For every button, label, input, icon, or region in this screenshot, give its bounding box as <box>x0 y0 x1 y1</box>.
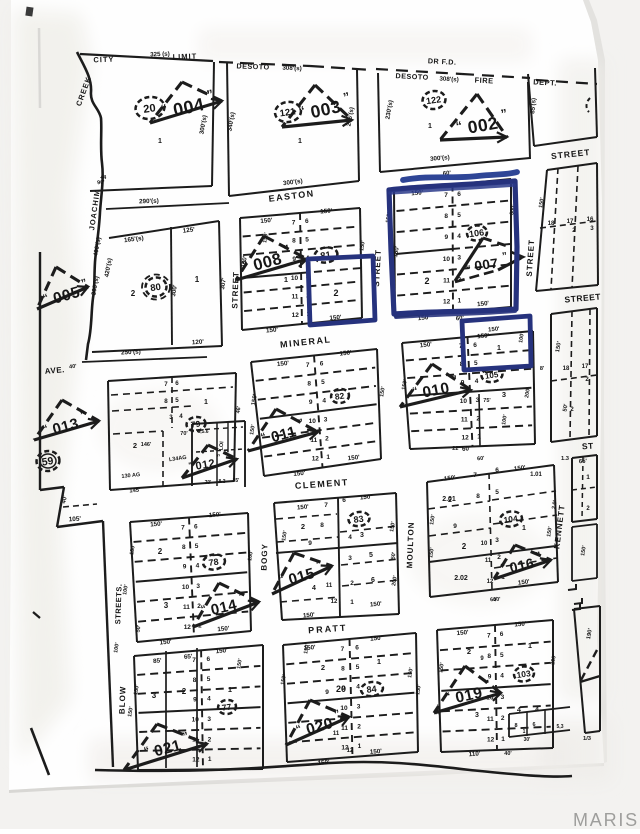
svg-text:2.02: 2.02 <box>454 575 468 582</box>
svg-text:2: 2 <box>501 715 505 722</box>
svg-text:150': 150' <box>420 341 433 349</box>
svg-text:40': 40' <box>504 751 512 757</box>
svg-text:4: 4 <box>207 696 211 703</box>
svg-text:2: 2 <box>333 288 338 298</box>
svg-text:4: 4 <box>356 684 360 691</box>
svg-text:150': 150' <box>456 629 469 637</box>
svg-text:308'(s): 308'(s) <box>282 65 302 73</box>
svg-text:1: 1 <box>528 641 532 650</box>
svg-text:FIRE: FIRE <box>474 76 494 86</box>
svg-text:150': 150' <box>260 217 273 225</box>
svg-text:6: 6 <box>532 722 535 728</box>
svg-text:8: 8 <box>320 522 324 529</box>
svg-text:12: 12 <box>487 736 495 743</box>
svg-text:60': 60' <box>462 445 471 453</box>
svg-text:4: 4 <box>322 398 326 405</box>
svg-text:80: 80 <box>150 282 162 294</box>
svg-text:150': 150' <box>370 748 383 756</box>
svg-text:120': 120' <box>192 339 205 347</box>
svg-text:12: 12 <box>443 299 451 306</box>
svg-text:22': 22' <box>452 446 460 452</box>
svg-text:7: 7 <box>324 502 328 509</box>
svg-text:6: 6 <box>457 191 461 198</box>
svg-text:150': 150' <box>514 620 527 628</box>
svg-text:7: 7 <box>306 362 310 369</box>
svg-text:5: 5 <box>321 379 325 386</box>
svg-text:4: 4 <box>196 563 200 570</box>
svg-text:6: 6 <box>473 342 477 349</box>
svg-text:2: 2 <box>133 441 137 450</box>
svg-text:150': 150' <box>444 474 457 482</box>
svg-text:2: 2 <box>350 580 354 587</box>
svg-text:10: 10 <box>309 418 317 425</box>
svg-text:11: 11 <box>326 583 333 589</box>
svg-text:8: 8 <box>444 213 448 220</box>
svg-text:150': 150' <box>518 578 531 586</box>
svg-text:3: 3 <box>590 225 594 232</box>
svg-text:150': 150' <box>303 611 316 619</box>
svg-text:8: 8 <box>164 398 168 405</box>
svg-text:78: 78 <box>208 557 219 568</box>
svg-text:STREETS.: STREETS. <box>113 583 123 624</box>
svg-text:18: 18 <box>548 220 555 227</box>
svg-text:12: 12 <box>192 756 200 763</box>
svg-text:40': 40' <box>69 364 78 371</box>
svg-text:11: 11 <box>291 294 298 301</box>
svg-text:6: 6 <box>500 631 504 638</box>
svg-text:1: 1 <box>501 736 505 743</box>
svg-text:85': 85' <box>233 478 240 484</box>
svg-text:6: 6 <box>355 645 359 652</box>
svg-text:150': 150' <box>266 326 279 334</box>
svg-text:308'(s): 308'(s) <box>439 76 459 84</box>
svg-text:17: 17 <box>582 364 589 370</box>
svg-text:150': 150' <box>217 625 230 633</box>
svg-text:1: 1 <box>204 399 208 406</box>
svg-text:5: 5 <box>175 397 179 404</box>
svg-text:6: 6 <box>305 218 309 225</box>
svg-text:60': 60' <box>477 456 486 463</box>
svg-text:150': 150' <box>297 503 310 511</box>
svg-text:10: 10 <box>340 705 348 712</box>
svg-text:90': 90' <box>97 180 106 187</box>
svg-text:12: 12 <box>184 624 192 631</box>
svg-text:106: 106 <box>468 227 484 239</box>
svg-text:103: 103 <box>516 668 532 680</box>
svg-text:5: 5 <box>474 360 478 367</box>
svg-text:12: 12 <box>331 599 338 605</box>
svg-text:9: 9 <box>453 523 457 530</box>
svg-text:6: 6 <box>342 497 346 504</box>
svg-text:1: 1 <box>428 123 432 130</box>
svg-text:DESOTO: DESOTO <box>395 71 429 82</box>
svg-text:70': 70' <box>205 480 212 486</box>
svg-text:7: 7 <box>473 472 477 479</box>
svg-text:150': 150' <box>320 207 333 215</box>
svg-text:11: 11 <box>487 716 494 723</box>
svg-text:1: 1 <box>523 729 526 735</box>
svg-text:6: 6 <box>175 380 179 387</box>
svg-text:1: 1 <box>284 275 288 284</box>
svg-text:6: 6 <box>194 523 198 530</box>
svg-text:2: 2 <box>321 663 325 672</box>
svg-text:4: 4 <box>179 413 183 420</box>
svg-text:5: 5 <box>495 489 499 496</box>
svg-text:20: 20 <box>336 684 346 694</box>
svg-text:40': 40' <box>493 597 502 604</box>
svg-text:1: 1 <box>298 138 302 145</box>
svg-text:3: 3 <box>360 532 364 539</box>
svg-text:8: 8 <box>182 544 186 551</box>
svg-text:122: 122 <box>425 94 441 106</box>
svg-text:150': 150' <box>339 349 352 357</box>
svg-text:8': 8' <box>540 366 545 372</box>
svg-text:DEPT.: DEPT. <box>533 77 557 87</box>
svg-text:18: 18 <box>563 366 570 372</box>
svg-text:4: 4 <box>475 378 479 385</box>
svg-text:1.01: 1.01 <box>530 472 542 478</box>
svg-text:AVE.: AVE. <box>44 365 65 376</box>
svg-text:8: 8 <box>341 665 345 672</box>
svg-text:MARIS: MARIS <box>573 810 639 829</box>
svg-text:325 (s): 325 (s) <box>150 51 170 59</box>
svg-text:65': 65' <box>184 653 194 661</box>
svg-text:5: 5 <box>369 552 373 559</box>
svg-text:1: 1 <box>522 525 526 532</box>
svg-text:75': 75' <box>483 398 491 404</box>
svg-text:5: 5 <box>195 543 199 550</box>
svg-text:150': 150' <box>317 759 330 767</box>
svg-text:11: 11 <box>341 725 348 732</box>
svg-text:290'(s): 290'(s) <box>139 198 159 206</box>
svg-text:LIMIT: LIMIT <box>172 52 197 62</box>
svg-text:7: 7 <box>181 524 185 531</box>
svg-text:1: 1 <box>195 275 200 284</box>
svg-text:84: 84 <box>366 684 377 695</box>
svg-text:7: 7 <box>444 192 448 199</box>
svg-text:10: 10 <box>460 398 468 405</box>
svg-text:2: 2 <box>497 554 501 561</box>
svg-text:3: 3 <box>502 390 506 399</box>
svg-text:3: 3 <box>475 712 479 719</box>
svg-text:12: 12 <box>347 748 354 754</box>
svg-text:8.3: 8.3 <box>219 479 226 485</box>
svg-text:7: 7 <box>292 219 296 226</box>
svg-text:105: 105 <box>484 370 499 381</box>
svg-text:7: 7 <box>487 632 491 639</box>
svg-text:3: 3 <box>169 414 173 421</box>
svg-text:145': 145' <box>129 487 141 494</box>
svg-text:11: 11 <box>461 416 468 423</box>
svg-text:1: 1 <box>228 685 232 694</box>
svg-text:3: 3 <box>207 716 211 723</box>
svg-text:7: 7 <box>341 646 345 653</box>
svg-text:9: 9 <box>444 234 448 241</box>
svg-text:6: 6 <box>320 361 324 368</box>
svg-text:82: 82 <box>334 390 345 401</box>
svg-text:104: 104 <box>503 513 519 525</box>
svg-text:79: 79 <box>190 418 201 429</box>
svg-text:150': 150' <box>488 326 500 333</box>
svg-text:70': 70' <box>180 431 188 437</box>
svg-text:1: 1 <box>208 756 212 763</box>
svg-text:2: 2 <box>325 436 329 443</box>
svg-text:77: 77 <box>221 701 232 712</box>
svg-text:9: 9 <box>183 564 187 571</box>
svg-text:10: 10 <box>291 275 299 282</box>
svg-text:DR F.D.: DR F.D. <box>428 56 457 66</box>
svg-text:4: 4 <box>348 534 352 541</box>
svg-text:1: 1 <box>497 345 501 352</box>
svg-text:150': 150' <box>347 454 360 462</box>
svg-text:150': 150' <box>370 600 383 608</box>
svg-text:2.01: 2.01 <box>442 496 456 503</box>
svg-text:11: 11 <box>183 604 190 611</box>
svg-text:150': 150' <box>215 647 228 655</box>
svg-text:105': 105' <box>68 516 81 524</box>
svg-text:STREET: STREET <box>230 271 240 309</box>
svg-text:3: 3 <box>495 537 499 544</box>
svg-text:150': 150' <box>150 520 163 528</box>
svg-text:3: 3 <box>357 704 361 711</box>
svg-text:150': 150' <box>209 511 222 519</box>
svg-text:10: 10 <box>481 541 488 547</box>
svg-text:7: 7 <box>164 381 168 388</box>
svg-text:CITY: CITY <box>93 55 114 65</box>
svg-text:2: 2 <box>357 724 361 731</box>
svg-text:1: 1 <box>350 599 354 606</box>
svg-text:85'(s): 85'(s) <box>529 98 537 114</box>
svg-text:6: 6 <box>206 656 210 663</box>
svg-text:5: 5 <box>305 237 309 244</box>
svg-text:8: 8 <box>292 238 296 245</box>
svg-text:BLOW: BLOW <box>118 686 128 715</box>
svg-text:3: 3 <box>164 601 169 610</box>
svg-text:2: 2 <box>572 227 576 234</box>
svg-text:1: 1 <box>586 474 590 481</box>
svg-text:10: 10 <box>192 717 200 724</box>
svg-text:MOULTON: MOULTON <box>405 521 416 568</box>
svg-text:4: 4 <box>312 585 316 592</box>
svg-text:5: 5 <box>207 676 211 683</box>
svg-text:10: 10 <box>443 256 451 263</box>
svg-text:2: 2 <box>158 547 163 556</box>
svg-text:3: 3 <box>152 691 157 700</box>
svg-text:146': 146' <box>141 442 152 448</box>
svg-text:83: 83 <box>353 514 364 525</box>
svg-text:2: 2 <box>301 522 305 531</box>
svg-text:10: 10 <box>182 584 190 591</box>
svg-text:110': 110' <box>468 750 481 758</box>
svg-text:3: 3 <box>324 417 328 424</box>
svg-text:150': 150' <box>293 470 306 478</box>
svg-text:85': 85' <box>153 657 163 665</box>
svg-text:3: 3 <box>348 555 352 562</box>
svg-text:1: 1 <box>457 297 461 304</box>
svg-text:150': 150' <box>159 638 172 646</box>
svg-text:7: 7 <box>192 657 196 664</box>
svg-text:150': 150' <box>277 360 290 368</box>
svg-text:11: 11 <box>333 731 340 737</box>
svg-text:2: 2 <box>462 542 467 551</box>
svg-text:20: 20 <box>143 102 157 116</box>
svg-text:8: 8 <box>514 723 517 729</box>
svg-text:11: 11 <box>485 558 492 564</box>
svg-text:BOGY: BOGY <box>260 543 270 571</box>
svg-text:150': 150' <box>514 464 527 472</box>
svg-text:121: 121 <box>279 106 297 119</box>
svg-text:1: 1 <box>326 454 330 461</box>
svg-text:12: 12 <box>487 579 494 585</box>
svg-text:2: 2 <box>182 687 187 696</box>
svg-text:150': 150' <box>360 493 373 501</box>
svg-text:ST: ST <box>582 441 595 452</box>
svg-text:5: 5 <box>500 652 504 659</box>
svg-text:3: 3 <box>457 255 461 262</box>
svg-text:9: 9 <box>309 399 313 406</box>
svg-text:2: 2 <box>467 647 471 656</box>
svg-text:8: 8 <box>193 677 197 684</box>
svg-text:2: 2 <box>208 736 212 743</box>
svg-text:4: 4 <box>457 233 461 240</box>
svg-text:2: 2 <box>131 289 136 298</box>
svg-text:1.3: 1.3 <box>561 456 570 462</box>
svg-text:9: 9 <box>325 689 329 696</box>
svg-text:8: 8 <box>476 493 480 500</box>
svg-text:5: 5 <box>457 212 461 219</box>
svg-text:1/3: 1/3 <box>583 736 592 742</box>
svg-text:3: 3 <box>196 583 200 590</box>
svg-text:2: 2 <box>424 276 429 286</box>
svg-text:250'(s): 250'(s) <box>121 348 141 356</box>
svg-text:4: 4 <box>500 673 504 680</box>
svg-text:3: 3 <box>501 694 505 701</box>
svg-text:12: 12 <box>312 456 320 463</box>
svg-text:5,3: 5,3 <box>557 724 564 730</box>
svg-text:30': 30' <box>524 737 531 743</box>
svg-text:150': 150' <box>370 635 383 643</box>
svg-text:12: 12 <box>461 434 469 441</box>
svg-text:8: 8 <box>487 653 491 660</box>
svg-text:6: 6 <box>495 467 499 474</box>
svg-text:6: 6 <box>371 577 375 584</box>
svg-text:16: 16 <box>587 216 594 223</box>
svg-text:DESOTO: DESOTO <box>236 61 270 71</box>
svg-text:8: 8 <box>307 381 311 388</box>
svg-text:1: 1 <box>358 743 362 750</box>
svg-text:150': 150' <box>477 300 490 308</box>
svg-text:1: 1 <box>158 138 162 145</box>
svg-text:1: 1 <box>377 657 381 666</box>
svg-text:9: 9 <box>308 540 312 547</box>
svg-text:5: 5 <box>356 664 360 671</box>
svg-text:65': 65' <box>579 459 588 466</box>
svg-text:17: 17 <box>567 218 574 225</box>
svg-text:4: 4 <box>535 706 539 713</box>
svg-text:12: 12 <box>292 312 300 319</box>
svg-text:11: 11 <box>443 278 450 285</box>
